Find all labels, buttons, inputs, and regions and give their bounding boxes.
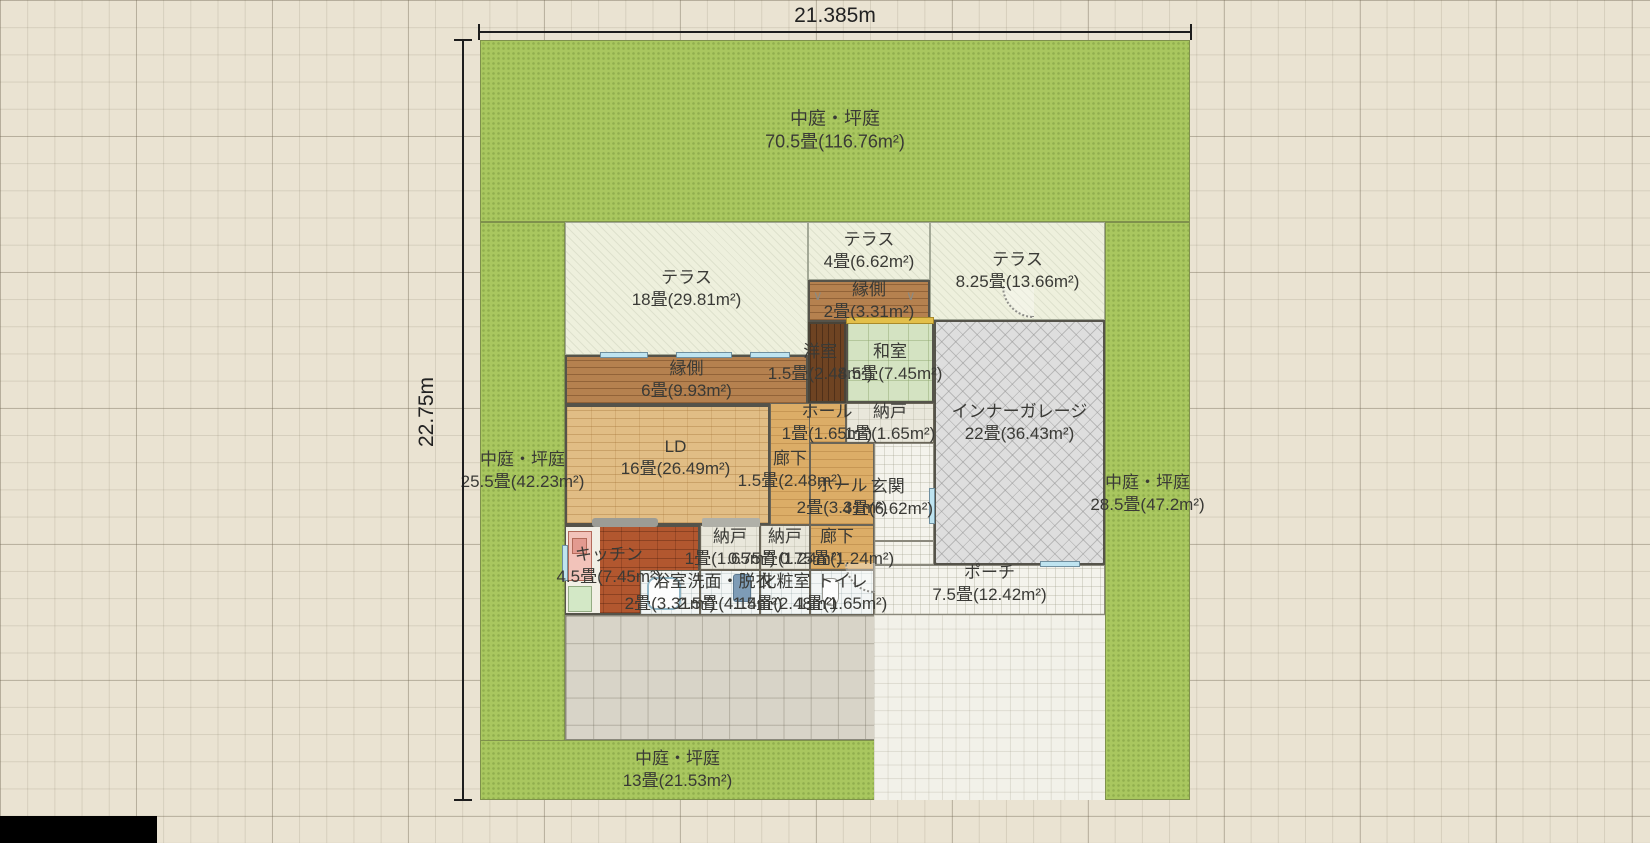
room-garden-top[interactable]: 中庭・坪庭70.5畳(116.76m²) [480,40,1190,222]
room-label: LD16畳(26.49m²) [621,436,731,480]
room-label: テラス18畳(29.81m²) [632,266,742,310]
room-garden-left[interactable]: 中庭・坪庭25.5畳(42.23m²) [480,222,565,800]
room-label: 中庭・坪庭70.5畳(116.76m²) [765,108,905,155]
dimension-line-top [478,31,1192,33]
room-label: ポーチ7.5畳(12.42m²) [932,562,1046,606]
tv-board[interactable] [592,518,658,527]
genkan-step-line [874,540,934,542]
room-label: 納戸1畳(1.65m²) [845,401,936,445]
window-marker [562,545,568,581]
room-youshitsu[interactable]: 洋室1.5畳(2.48m²) [808,322,846,403]
driveway[interactable] [565,615,875,740]
window-marker [929,488,935,524]
dimension-line-left [462,40,464,800]
tokonoma-band [846,317,934,324]
room-ld[interactable]: LD16畳(26.49m²) [565,405,770,525]
toilet-bowl[interactable] [822,578,839,606]
storage-counter[interactable] [702,518,760,527]
dimension-label-left: 22.75m [415,357,439,467]
room-keshou[interactable]: 化粧室1.5畳(2.48m²) [760,570,810,615]
floor-plan-canvas: 中庭・坪庭70.5畳(116.76m²) 中庭・坪庭25.5畳(42.23m²)… [0,0,1650,843]
room-rouka-main[interactable]: 廊下1.5畳(2.48m²) [770,403,810,525]
dimension-tick [454,39,472,41]
washbasin[interactable] [733,574,751,602]
bottom-toolbar-bar [0,816,157,843]
lot-empty-area [874,615,1105,800]
window-marker [1040,561,1080,567]
room-garden-right[interactable]: 中庭・坪庭28.5畳(47.2m²) [1105,222,1190,800]
window-marker [750,352,790,358]
dimension-label-top: 21.385m [480,4,1190,28]
room-terrace-large[interactable]: テラス18畳(29.81m²) [565,222,808,355]
room-genkan[interactable]: 玄関4畳(6.62m²) [874,443,934,565]
room-washitsu[interactable]: 和室4.5畳(7.45m²) [846,322,934,403]
window-marker [600,352,648,358]
room-hall-small[interactable]: ホール1畳(1.65m²) [808,403,846,443]
window-marker [676,352,732,358]
dimension-tick [454,799,472,801]
room-label: テラス4畳(6.62m²) [824,229,915,273]
shutter-mark: ∨ [906,289,916,302]
kitchen-appliance[interactable] [568,586,592,612]
room-label: 中庭・坪庭13畳(21.53m²) [623,748,733,792]
room-engawa-large[interactable]: 縁側6畳(9.93m²) [565,355,808,405]
room-garden-bottom[interactable]: 中庭・坪庭13畳(21.53m²) [480,740,875,800]
dimension-tick [1190,24,1192,40]
shutter-mark: ∨ [813,289,823,302]
room-label: 中庭・坪庭28.5畳(47.2m²) [1090,472,1204,516]
room-nando-3[interactable]: 納戸0.75畳(1.24m²) [760,525,810,570]
room-label: 和室4.5畳(7.45m²) [838,340,943,384]
room-terrace-small[interactable]: テラス4畳(6.62m²) [808,222,930,280]
bathtub[interactable] [647,577,681,610]
room-porch[interactable]: ポーチ7.5畳(12.42m²) [874,565,1105,615]
room-nando-2[interactable]: 納戸1畳(1.65m²) [700,525,760,570]
room-garage[interactable]: インナーガレージ22畳(36.43m²) [934,320,1105,565]
room-label: インナーガレージ22畳(36.43m²) [952,401,1088,445]
room-label: 縁側6畳(9.93m²) [641,358,732,402]
room-hall-main[interactable]: ホール2畳(3.31m²) [810,443,874,525]
room-senmen[interactable]: 洗面・脱衣2.5畳(4.14m²) [700,570,760,615]
kitchen-sink [572,538,587,554]
room-nando-1[interactable]: 納戸1畳(1.65m²) [846,403,934,443]
